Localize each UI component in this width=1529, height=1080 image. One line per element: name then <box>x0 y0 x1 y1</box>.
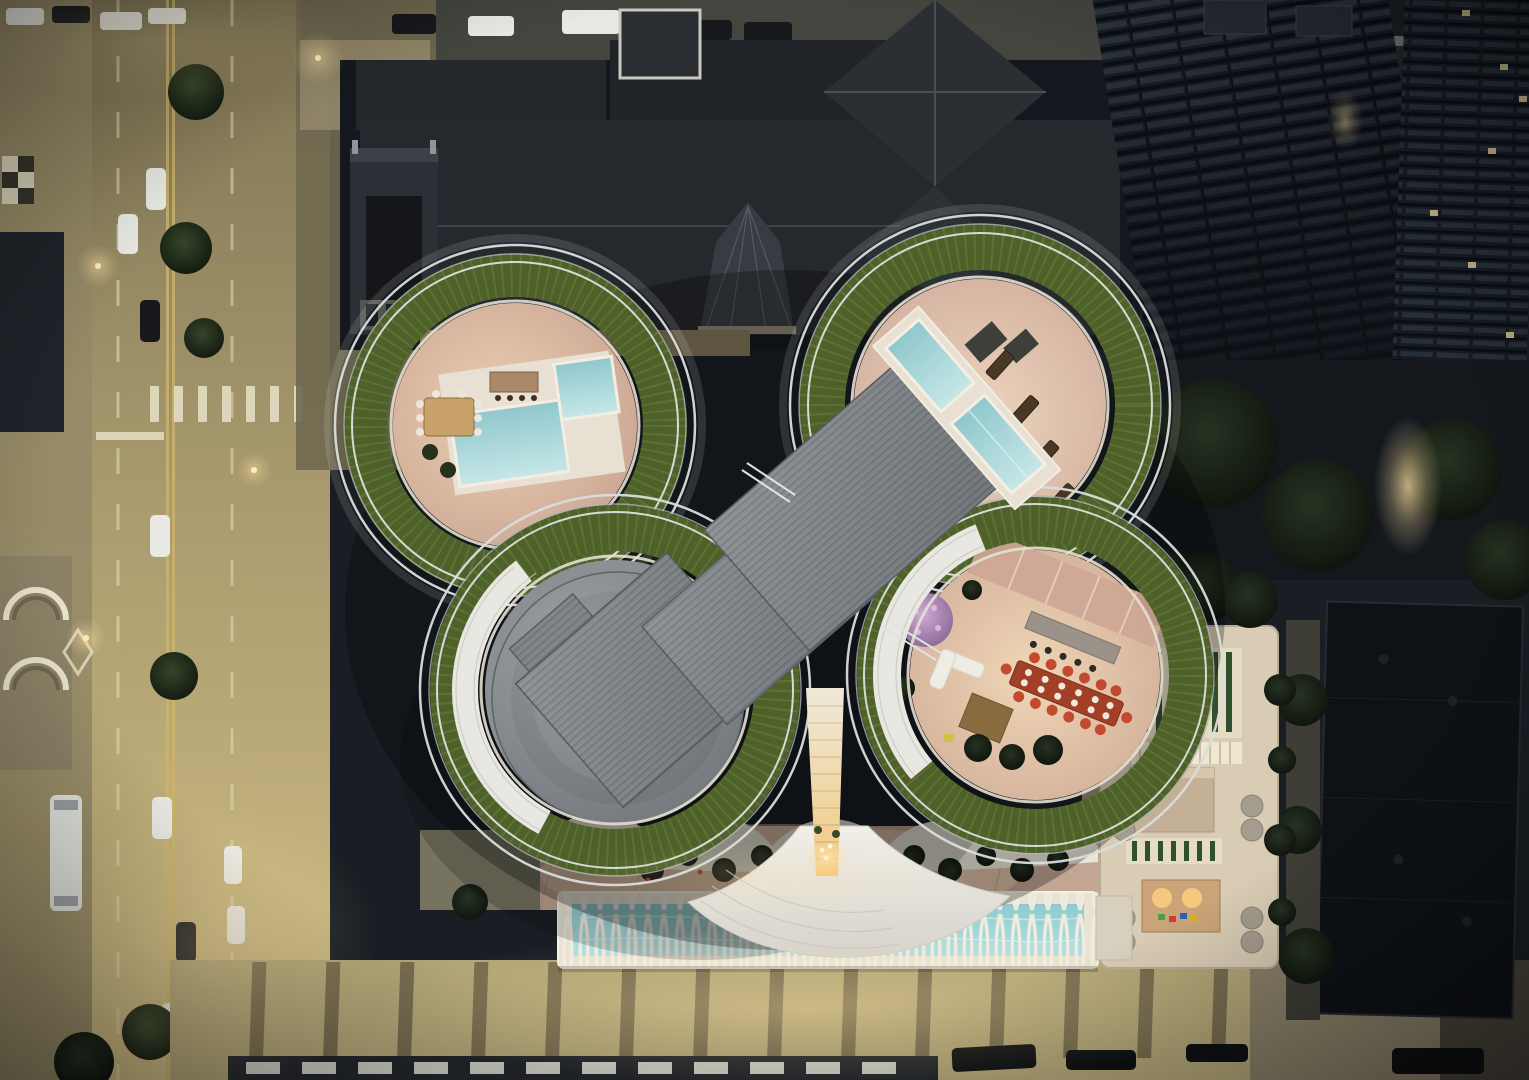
vignette <box>0 0 1529 1080</box>
photo-canvas <box>0 0 1529 1080</box>
aerial-photograph: Dusk aerial view straight down onto a bu… <box>0 0 1529 1080</box>
